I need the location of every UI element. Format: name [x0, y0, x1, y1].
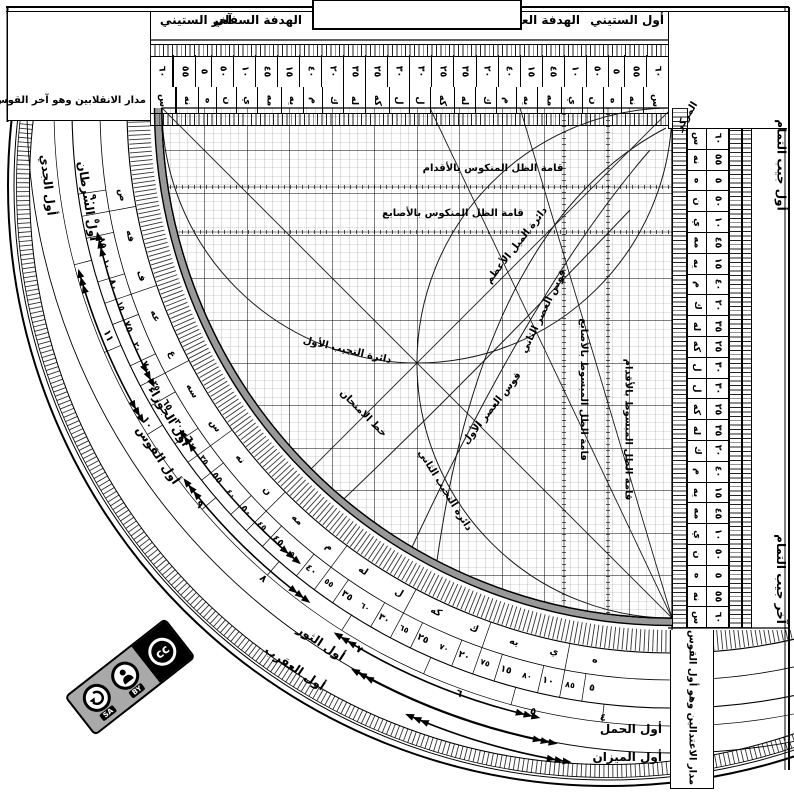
sittini-cell: ٤٥ — [542, 55, 564, 87]
jayb-cell: ٥٠ — [707, 544, 729, 565]
jayb-abjad-cell: ك — [687, 294, 707, 315]
zodiac-label-mizan: أول الميزان — [592, 750, 662, 764]
jayb-abjad-cell: س — [687, 128, 707, 149]
jayb-cell: ٥٠ — [707, 190, 729, 211]
jayb-numerals-column: ٦٠٥٥٥٥٠١٠٤٥١٥٤٠٢٠٣٥٢٥٣٠٣٠٢٥٣٥٢٠٤٠١٥٤٥١٠٥… — [706, 128, 730, 628]
jayb-abjad-cell: س — [687, 606, 707, 628]
sittini-cell: ٥٠ — [586, 55, 608, 87]
sittini-abjad-cell: ك — [322, 87, 343, 113]
jayb-abjad-cell: ه — [687, 170, 707, 191]
jayb-cell: ٦٠ — [707, 606, 729, 628]
sittini-ruler-bottom — [150, 113, 668, 126]
jayb-cell: ٣٥ — [707, 419, 729, 440]
sittini-abjad-cell: م — [496, 87, 515, 113]
jayb-cell: ٤٠ — [707, 461, 729, 482]
jayb-cell: ٤٥ — [707, 232, 729, 253]
sittini-abjad-cell: كه — [430, 87, 454, 113]
sittini-cell: ٢٥ — [431, 55, 453, 87]
sittini-cell: ٤٠ — [498, 55, 520, 87]
jayb-abjad-cell: ن — [687, 544, 707, 565]
jayb-abjad-cell: نه — [687, 586, 707, 607]
cosine-end-label: آخر جيب التمام — [774, 534, 788, 624]
sittini-abjad-cell: يه — [516, 87, 538, 113]
sittini-abjad-cell: يه — [281, 87, 303, 113]
zodiac-label-hamal: أول الحمل — [600, 722, 662, 736]
sittini-cell: ٥٥ — [173, 55, 195, 87]
jayb-cell: ٢٠ — [707, 440, 729, 461]
label-zill-mankus-aqdam: قامة الظل المنكوس بالأقدام — [412, 163, 574, 174]
jayb-abjad-cell: م — [687, 461, 707, 482]
sittini-abjad-cell: كه — [365, 87, 389, 113]
jayb-abjad-cell: م — [687, 274, 707, 295]
sittini-cell: ١٥ — [520, 55, 542, 87]
jayb-cell: ٢٠ — [707, 294, 729, 315]
sittini-cell: ٦٠ — [150, 55, 173, 87]
jayb-hatch-outer — [728, 128, 742, 628]
jayb-cell: ٢٥ — [707, 398, 729, 419]
sittini-cell: ٦٠ — [646, 55, 668, 87]
sittini-cell: ٥٠ — [211, 55, 233, 87]
sittini-cell: ٣٥ — [453, 55, 475, 87]
sittini-cell: ١٠ — [233, 55, 255, 87]
sittini-abjad-cell: مه — [537, 87, 561, 113]
jayb-cell: ٤٥ — [707, 502, 729, 523]
sittini-abjad-cell: س — [643, 87, 668, 113]
jayb-abjad-cell: كه — [687, 336, 707, 357]
jayb-cell: ٢٥ — [707, 336, 729, 357]
jayb-abjad-cell: يه — [687, 253, 707, 274]
jayb-cell: ١٠ — [707, 211, 729, 232]
jayb-abjad-cell: نه — [687, 149, 707, 170]
jayb-abjad-cell: مه — [687, 502, 707, 523]
sittini-scale: ٦٠٥٥٥٥٠١٠٤٥١٥٤٠٢٠٣٥٢٥٣٠٣٠٢٥٣٥٢٠٤٠١٥٤٥١٠٥… — [150, 44, 668, 122]
sine-quadrant-diagram: أول الستيني الهدفة العليا الهدفة السفلي … — [0, 0, 794, 794]
jayb-cell: ١٥ — [707, 253, 729, 274]
label-zill-mankus-asabi: قامة الظل المنكوس بالأصابع — [372, 208, 534, 219]
sittini-cell: ٥ — [195, 55, 211, 87]
sittini-abjad-cell: نه — [621, 87, 643, 113]
solstice-note-box: مدار الانقلابين وهو آخر القوس — [8, 12, 151, 121]
sighting-tab — [312, 0, 522, 30]
label-zill-mabsut-asabi: قامة الظل المبسوط بالأصابع — [578, 318, 589, 461]
jayb-abjad-cell: ه — [687, 565, 707, 586]
cosine-edge-hatch — [742, 128, 752, 628]
sittini-cell: ٣٥ — [343, 55, 365, 87]
jayb-abjad-cell: ن — [687, 190, 707, 211]
jayb-cell: ١٥ — [707, 482, 729, 503]
sittini-cell: ٣٠ — [409, 55, 431, 87]
sittini-abjad-cell: ي — [561, 87, 582, 113]
sittini-cell: ٢٠ — [476, 55, 498, 87]
jayb-abjad-cell: يه — [687, 482, 707, 503]
sittini-abjad-cell: ه — [603, 87, 621, 113]
top-label-awwal-sittini: أول الستيني — [590, 13, 664, 27]
jayb-cell: ٥ — [707, 565, 729, 586]
jayb-abjad-cell: له — [687, 419, 707, 440]
sittini-abjad-cell: س — [150, 87, 176, 113]
jayb-cell: ١٠ — [707, 523, 729, 544]
jayb-cell: ٣٠ — [707, 378, 729, 399]
sittini-abjad-cell: ن — [582, 87, 602, 113]
cosine-start-label: أول جيب التمام — [775, 119, 789, 210]
sittini-abjad-cell: ن — [216, 87, 236, 113]
jayb-cell: ٣٥ — [707, 315, 729, 336]
sittini-abjad-cell: ه — [198, 87, 216, 113]
sittini-cell: ١٠ — [564, 55, 586, 87]
jayb-abjad-cell: ل — [687, 357, 707, 378]
label-zill-mabsut-aqdam: قامة الظل المبسوط بالأقدام — [622, 359, 633, 501]
sittini-cell: ١٥ — [277, 55, 299, 87]
solstice-note: مدار الانقلابين وهو آخر القوس — [0, 95, 146, 106]
top-label-akhir-sittini: آخر الستيني — [160, 13, 232, 27]
jayb-cell: ٣٠ — [707, 357, 729, 378]
sittini-cell: ٣٠ — [387, 55, 409, 87]
sittini-abjad-cell: ي — [236, 87, 257, 113]
sittini-abjad-cell: مه — [257, 87, 281, 113]
jayb-abjad-cell: مه — [687, 232, 707, 253]
sittini-cell: ٤٥ — [255, 55, 277, 87]
sittini-abjad-cell: ل — [409, 87, 430, 113]
equinox-note-box: مدار الاعتدالين وهو أول القوس — [670, 630, 714, 789]
sittini-abjad-cell: م — [303, 87, 322, 113]
sittini-abjad-cell: له — [454, 87, 476, 113]
jayb-cell: ٥ — [707, 170, 729, 191]
sittini-cell: ٢٥ — [365, 55, 387, 87]
jayb-abjad-cell: ل — [687, 378, 707, 399]
sittini-cell: ٢٠ — [321, 55, 343, 87]
jayb-cell: ٤٠ — [707, 274, 729, 295]
jayb-cell: ٥٥ — [707, 149, 729, 170]
jayb-abjad-column: سنههنيمهيهمكلهكهللكهلهكميهمهينهنهس — [686, 128, 707, 628]
sittini-cell: ٤٠ — [299, 55, 321, 87]
jayb-cell: ٦٠ — [707, 128, 729, 149]
sittini-cell: ٥٥ — [624, 55, 646, 87]
jayb-abjad-cell: له — [687, 315, 707, 336]
jayb-abjad-cell: ي — [687, 211, 707, 232]
sittini-numerals-row: ٦٠٥٥٥٥٠١٠٤٥١٥٤٠٢٠٣٥٢٥٣٠٣٠٢٥٣٥٢٠٤٠١٥٤٥١٠٥… — [150, 55, 668, 87]
jayb-abjad-cell: كه — [687, 398, 707, 419]
sittini-cell: ٥ — [608, 55, 624, 87]
sittini-abjad-cell: نه — [176, 87, 198, 113]
sittini-abjad-row: سنههنيمهيهمكلهكهللكهلهكميهمهينهنهس — [150, 87, 668, 113]
sittini-abjad-cell: ل — [389, 87, 410, 113]
jayb-abjad-cell: ي — [687, 523, 707, 544]
equinox-note: مدار الاعتدالين وهو أول القوس — [687, 629, 698, 787]
sittini-abjad-cell: ك — [475, 87, 496, 113]
sittini-abjad-cell: له — [343, 87, 365, 113]
jayb-abjad-cell: ك — [687, 440, 707, 461]
jayb-cell: ٥٥ — [707, 586, 729, 607]
